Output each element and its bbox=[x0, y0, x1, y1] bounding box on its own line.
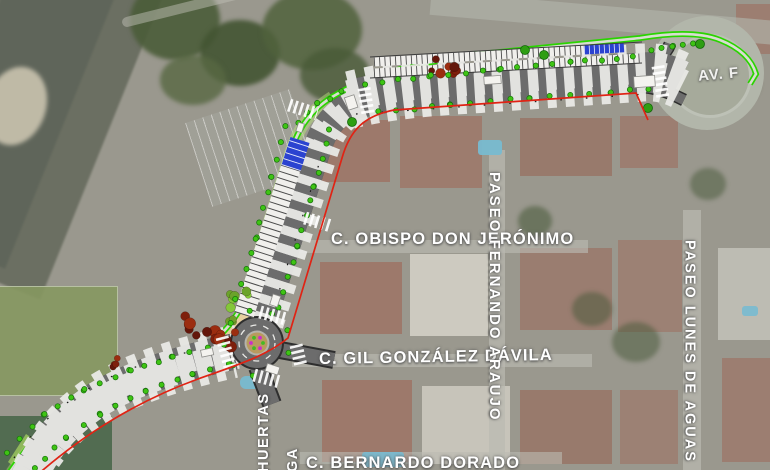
street-label-obispo: C. OBISPO DON JERÓNIMO bbox=[331, 231, 574, 248]
street-label-ga: GA bbox=[286, 432, 301, 470]
roundabout bbox=[230, 316, 284, 370]
map-canvas: C. OBISPO DON JERÓNIMO C. GIL GONZÁLEZ D… bbox=[0, 0, 770, 470]
street-label-fernando-araujo: PASEO FERNANDO ARAUJO bbox=[487, 172, 502, 447]
street-label-bernardo: C. BERNARDO DORADO bbox=[306, 455, 520, 470]
project-boundary-line bbox=[36, 93, 648, 470]
street-label-lunes-de-aguas: PASEO LUNES DE AGUAS bbox=[682, 240, 697, 460]
street-label-gil: C. GIL GONZÁLEZ DÁVILA bbox=[319, 347, 553, 368]
street-label-av-f: AV. F bbox=[697, 65, 740, 84]
street-label-huertas: HUERTAS bbox=[257, 384, 272, 470]
